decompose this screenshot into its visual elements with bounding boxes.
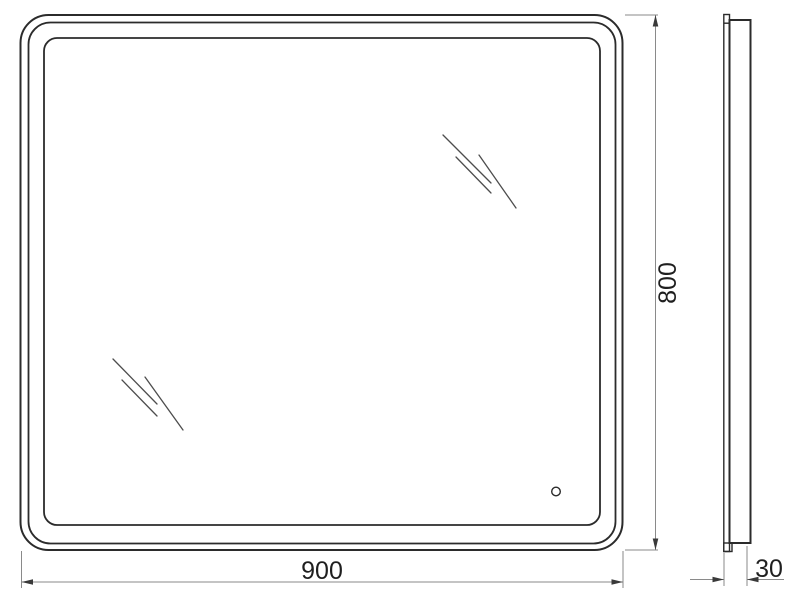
mirror-frame-inner-edge (29, 23, 616, 544)
mirror-dimension-drawing: 900 800 30 (0, 0, 800, 599)
depth-dimension-label: 30 (755, 555, 783, 583)
side-view-backing-box (730, 20, 751, 543)
depth-dimension: 30 (690, 546, 784, 586)
mirror-front-view (21, 15, 623, 550)
width-dimension-label: 900 (301, 557, 343, 585)
height-dimension-label: 800 (654, 262, 682, 304)
touch-sensor-icon (552, 487, 561, 496)
glass-reflection-icon (113, 359, 183, 430)
side-view-glass-bottom-cap (724, 543, 732, 552)
arrowhead-right-icon (612, 579, 624, 585)
mirror-outer-frame (21, 15, 623, 550)
height-dimension: 800 (625, 15, 682, 550)
arrowhead-down-icon (653, 539, 659, 551)
arrowhead-right-icon (713, 577, 725, 582)
arrowhead-up-icon (653, 15, 659, 27)
glass-reflection-icon (443, 135, 516, 208)
technical-drawing-canvas: 900 800 30 (0, 0, 800, 599)
arrowhead-left-icon (22, 579, 34, 585)
led-zone-border (44, 38, 600, 525)
width-dimension: 900 (22, 551, 624, 588)
mirror-side-view (724, 15, 751, 552)
